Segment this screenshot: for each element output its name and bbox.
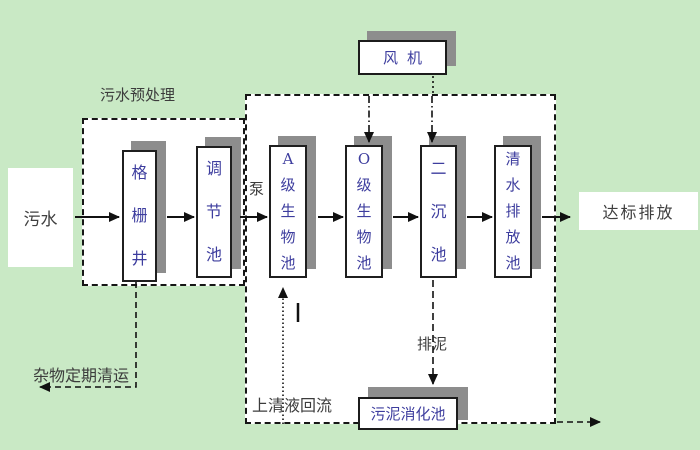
debris-arrow — [40, 282, 136, 387]
flow-arrows — [0, 0, 700, 450]
process-flow-diagram: 污水预处理 污水 达标排放 格栅井 调节池 A级生物池 O级生物池 二沉池 清水… — [0, 0, 700, 450]
